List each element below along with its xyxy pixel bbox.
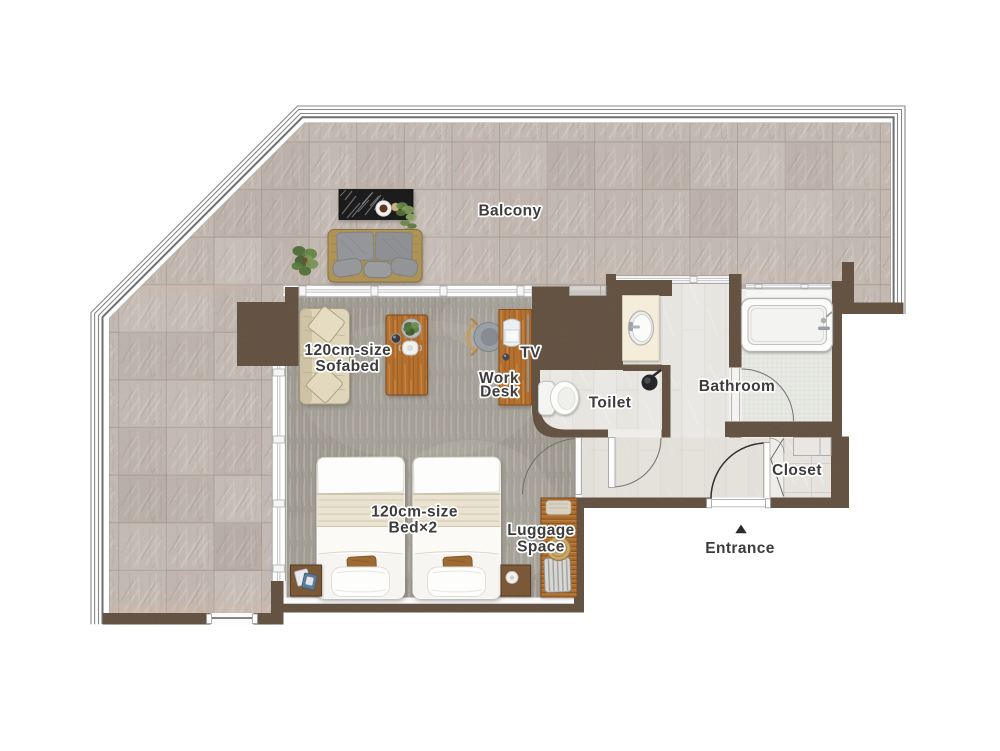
svg-text:Balcony: Balcony <box>478 203 541 220</box>
svg-text:Space: Space <box>517 539 565 556</box>
svg-text:Entrance: Entrance <box>705 540 775 557</box>
svg-text:Luggage: Luggage <box>507 522 574 539</box>
svg-text:Closet: Closet <box>772 462 822 479</box>
svg-text:120cm-size: 120cm-size <box>371 504 458 521</box>
svg-text:Desk: Desk <box>480 384 519 401</box>
svg-text:Bed×2: Bed×2 <box>389 520 438 537</box>
svg-text:Toilet: Toilet <box>589 395 632 412</box>
svg-text:120cm-size: 120cm-size <box>304 342 391 359</box>
svg-text:Bathroom: Bathroom <box>699 378 775 395</box>
svg-text:Sofabed: Sofabed <box>315 358 379 375</box>
svg-text:TV: TV <box>520 345 541 362</box>
